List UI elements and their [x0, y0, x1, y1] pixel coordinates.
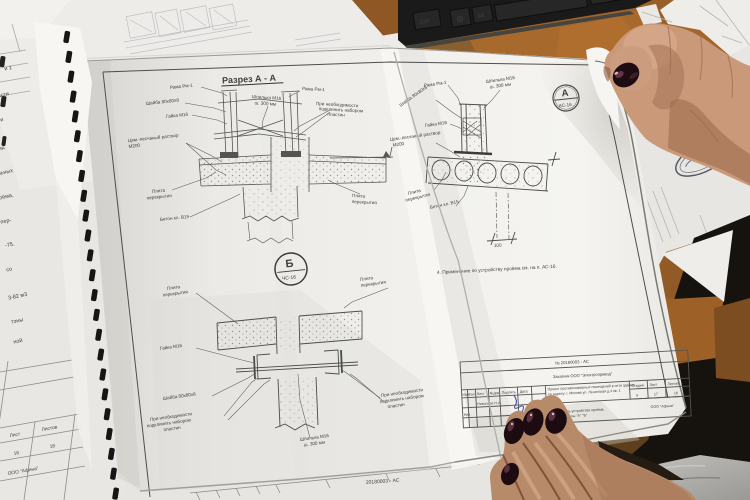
svg-text:Б: Б: [285, 258, 294, 271]
svg-text:Alt: Alt: [477, 12, 485, 20]
svg-text:со: со: [6, 266, 13, 273]
svg-text:Кол: Кол: [469, 392, 475, 396]
svg-text:Ctrl: Ctrl: [419, 18, 429, 26]
svg-text:⊞: ⊞: [456, 14, 464, 24]
svg-text:№док: №док: [490, 391, 500, 396]
svg-text:Лист: Лист: [477, 392, 485, 396]
svg-text:Дата: Дата: [520, 390, 528, 394]
svg-text:А: А: [561, 88, 569, 100]
svg-text:Нач.: Нач.: [464, 412, 472, 416]
svg-text:Лист: Лист: [649, 383, 657, 387]
svg-text:Листов: Листов: [667, 382, 679, 387]
svg-text:16: 16: [674, 391, 678, 395]
svg-text:а: а: [636, 393, 638, 397]
svg-text:Плита: Плита: [352, 193, 366, 199]
svg-text:пластин: пластин: [327, 112, 345, 118]
svg-text:100: 100: [494, 242, 502, 248]
svg-text:17: 17: [654, 392, 658, 396]
svg-text:Подпись: Подпись: [502, 390, 517, 395]
svg-text:Стадия: Стадия: [631, 383, 643, 388]
